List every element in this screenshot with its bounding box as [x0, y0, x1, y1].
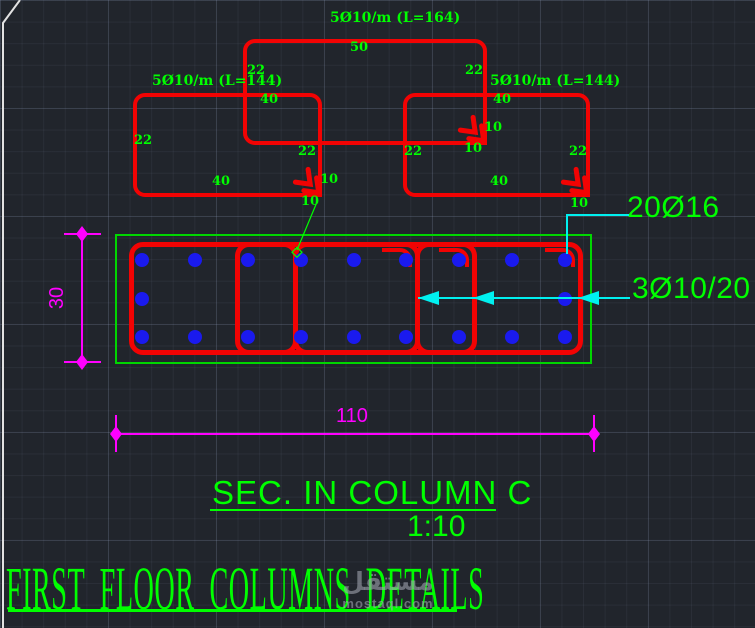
stirrup-dim-label: 10	[320, 173, 338, 186]
rebar-dot	[135, 330, 149, 344]
rebar-dot	[452, 330, 466, 344]
rebar-dot	[241, 330, 255, 344]
rebar-dot	[558, 292, 572, 306]
stirrup-dim-label: 10	[484, 121, 502, 134]
rebar-dot	[241, 253, 255, 267]
rebar-dot	[294, 330, 308, 344]
rebar-dot	[188, 330, 202, 344]
stirrup-dim-label: 40	[490, 175, 508, 188]
stirrup-dim-label: 22	[404, 145, 422, 158]
rebar-dot	[558, 253, 572, 267]
rebar-dot	[347, 253, 361, 267]
rebar-dot	[135, 253, 149, 267]
stirrup-dim-label: 10	[301, 195, 319, 208]
rebar-dot	[558, 330, 572, 344]
stirrup-dim-label: 40	[493, 93, 511, 106]
stirrup-dim-label: 5Ø10/m (L=144)	[152, 74, 282, 88]
stirrup-dim-label: 22	[465, 64, 483, 77]
generated-drawing-layer: 5Ø10/m (L=164)5022225Ø10/m (L=144)5Ø10/m…	[0, 0, 755, 628]
stirrup-dim-label: 10	[570, 197, 588, 210]
watermark-arabic-text: مستقل	[326, 569, 450, 594]
stirrup-dim-label: 10	[464, 142, 482, 155]
stirrup-dim-label: 5Ø10/m (L=164)	[330, 11, 460, 25]
rebar-dot	[135, 292, 149, 306]
watermark: مستقل mostaql.com	[326, 569, 450, 610]
rebar-dot	[294, 253, 308, 267]
rebar-dot	[452, 253, 466, 267]
cad-drawing-canvas[interactable]: 5Ø10/m (L=164)5022225Ø10/m (L=144)5Ø10/m…	[0, 0, 755, 628]
rebar-dot	[505, 253, 519, 267]
rebar-dot	[347, 330, 361, 344]
watermark-domain-text: mostaql.com	[326, 597, 450, 610]
stirrup-dim-label: 22	[298, 145, 316, 158]
rebar-dot	[399, 253, 413, 267]
stirrup-dim-label: 50	[350, 41, 368, 54]
rebar-dot	[505, 330, 519, 344]
stirrup-dim-label: 5Ø10/m (L=144)	[490, 74, 620, 88]
rebar-dot	[399, 330, 413, 344]
stirrup-dim-label: 40	[212, 175, 230, 188]
rebar-dot	[188, 253, 202, 267]
stirrup-dim-label: 40	[260, 93, 278, 106]
stirrup-dim-label: 22	[134, 134, 152, 147]
stirrup-dim-label: 22	[569, 145, 587, 158]
